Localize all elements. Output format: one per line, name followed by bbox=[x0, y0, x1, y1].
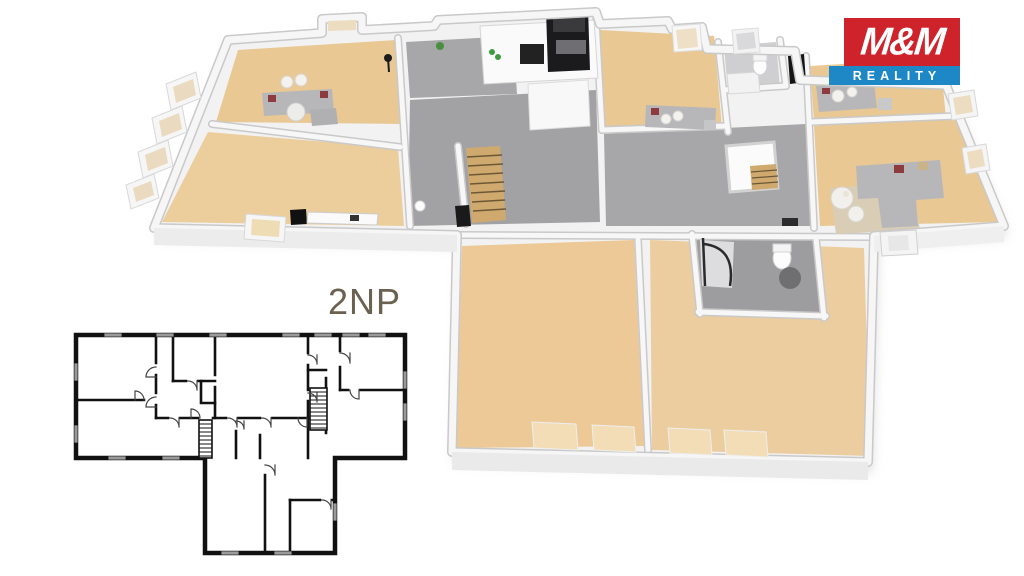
sideboard-item bbox=[350, 215, 359, 221]
toilet-bathroom bbox=[773, 244, 791, 269]
tv-black bbox=[290, 209, 307, 225]
staircase bbox=[466, 146, 506, 223]
floor-plan-2d-blueprint bbox=[58, 323, 430, 573]
sideboard-white bbox=[307, 212, 378, 225]
shower bbox=[700, 238, 734, 288]
door-front-right bbox=[880, 230, 918, 256]
logo-subtitle: REALITY bbox=[848, 69, 941, 83]
logo-blue-bar: REALITY bbox=[829, 66, 960, 85]
window-back-left bbox=[328, 20, 356, 31]
floor-label: 2NP bbox=[328, 281, 401, 323]
window-front-left bbox=[244, 214, 286, 242]
stairwell-opening bbox=[726, 142, 778, 192]
coat-stand bbox=[455, 205, 471, 227]
window-left-4 bbox=[126, 174, 159, 209]
window-right-1 bbox=[948, 90, 978, 120]
stairs-left bbox=[199, 420, 212, 458]
interior-wall-lines bbox=[76, 335, 405, 553]
logo-red-box: M&M bbox=[844, 18, 960, 66]
kitchen-island bbox=[528, 80, 590, 130]
wing-room-left-floor bbox=[456, 240, 644, 448]
logo-title: M&M bbox=[858, 20, 945, 64]
real-estate-floorplan-image: 2NP M&M REALITY bbox=[0, 0, 1024, 576]
window-left-2 bbox=[152, 106, 187, 144]
sofa-kitchen-room bbox=[645, 105, 716, 130]
plant bbox=[436, 42, 444, 50]
window-marks bbox=[76, 335, 405, 553]
doormat bbox=[782, 218, 798, 226]
agency-logo: M&M REALITY bbox=[829, 18, 960, 85]
window-back-wc bbox=[732, 28, 760, 54]
decor-sphere bbox=[415, 201, 425, 211]
corridor-right-floor bbox=[604, 124, 812, 226]
window-left-1 bbox=[166, 72, 201, 110]
window-left-3 bbox=[138, 140, 173, 178]
window-right-2 bbox=[962, 144, 990, 174]
window-back-kitchenroom bbox=[672, 24, 702, 52]
outer-wall bbox=[76, 335, 405, 553]
bath-rug bbox=[779, 267, 801, 289]
